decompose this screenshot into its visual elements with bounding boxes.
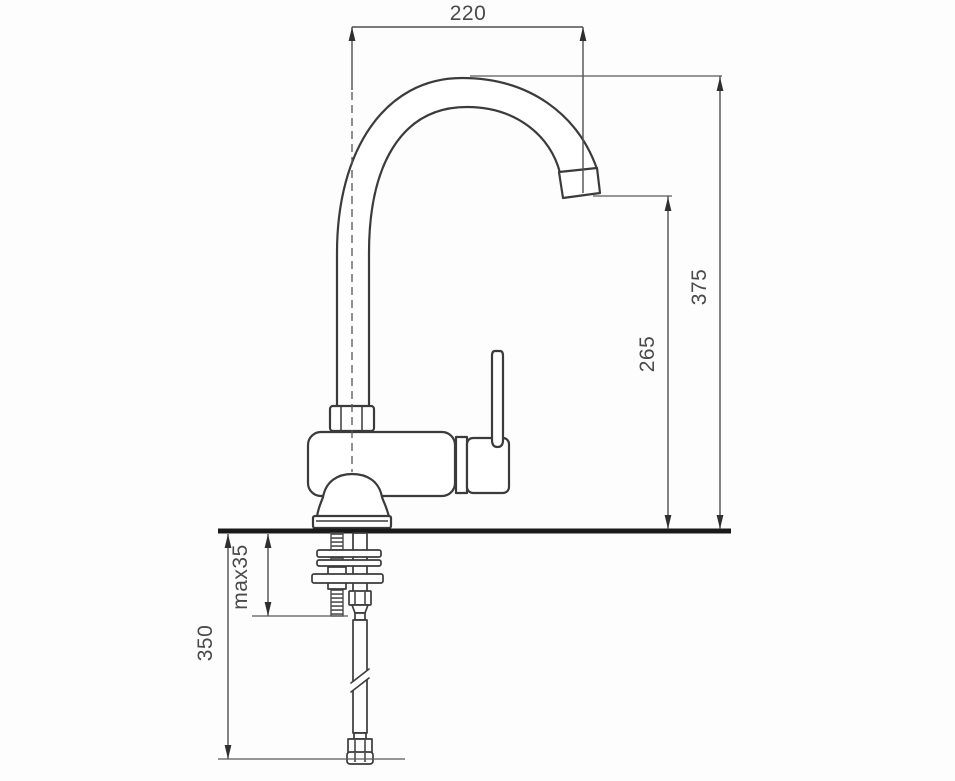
faucet-base-plate xyxy=(313,516,391,528)
dim-label-deck-thickness: max35 xyxy=(229,544,252,610)
hose-end-cap xyxy=(347,752,373,764)
hose-connector-neck xyxy=(355,613,365,620)
hose-connector-hex xyxy=(349,591,371,605)
hose-end-neck xyxy=(354,733,366,739)
drawing-canvas: 220 375 265 max35 350 xyxy=(0,0,955,781)
faucet-end-cap xyxy=(467,438,509,493)
faucet-spout-outlet xyxy=(559,168,600,198)
clamp-flange-plate xyxy=(312,574,383,583)
washer-plate-middle xyxy=(317,560,381,566)
mounting-hardware-group xyxy=(312,533,383,764)
faucet-body-ring xyxy=(456,437,467,493)
washer-plate-top xyxy=(317,550,381,557)
hose-connector-taper xyxy=(352,605,368,613)
dim-label-outlet-height: 265 xyxy=(636,336,659,373)
dimension-265-outlet-height: 265 xyxy=(593,196,672,529)
hose-end-hex-nut xyxy=(348,739,372,753)
dim-label-hose-length: 350 xyxy=(194,625,217,662)
faucet-spout-gooseneck xyxy=(337,78,597,436)
dim-label-spout-reach: 220 xyxy=(450,2,487,25)
faucet-handle-lever xyxy=(492,351,503,447)
faucet-technical-drawing: 220 375 265 max35 350 xyxy=(0,0,955,781)
dim-label-overall-height: 375 xyxy=(688,269,711,306)
dimension-350-hose-length: 350 xyxy=(194,534,405,759)
